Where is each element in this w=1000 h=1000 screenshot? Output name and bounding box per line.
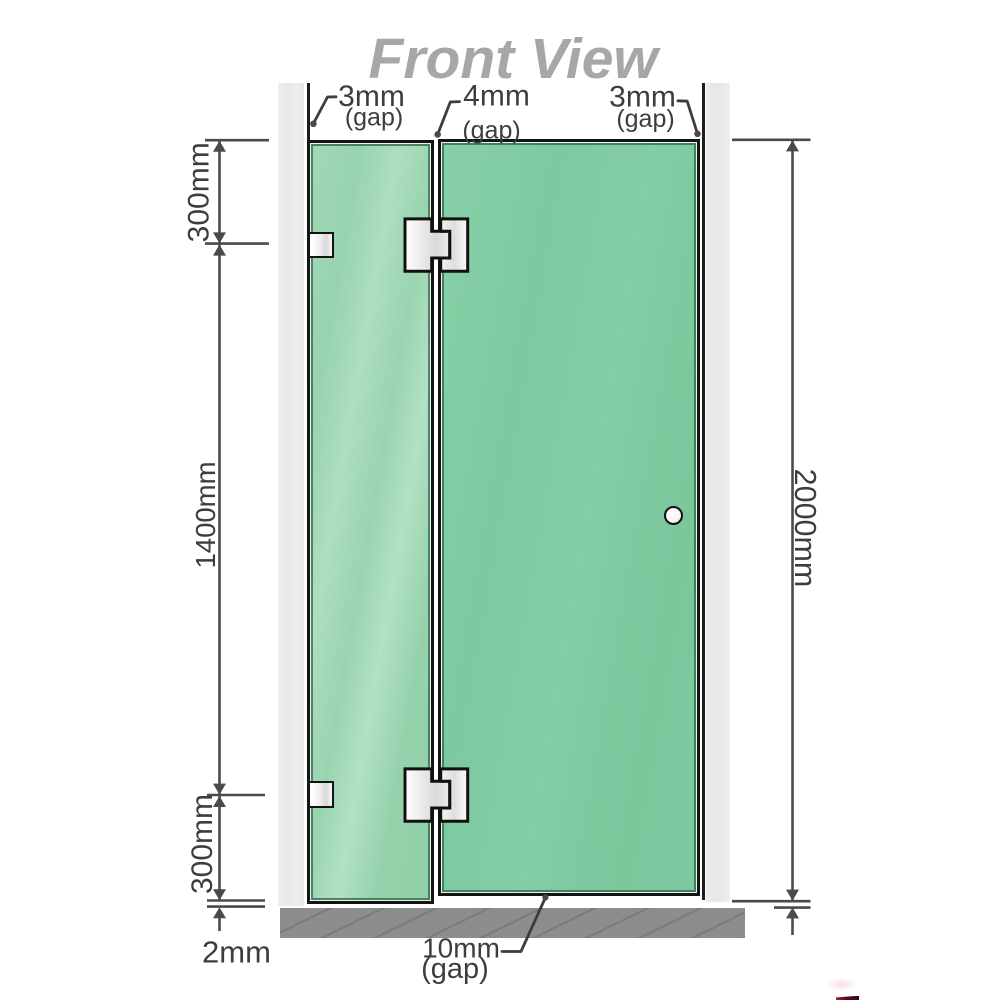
svg-text:(gap): (gap) [616,105,674,133]
svg-text:4mm: 4mm [463,79,530,112]
svg-text:2mm: 2mm [202,935,271,970]
svg-text:300mm: 300mm [186,794,219,894]
svg-text:1400mm: 1400mm [190,462,221,569]
svg-text:(gap): (gap) [421,953,489,985]
svg-text:300mm: 300mm [183,142,216,242]
svg-text:(gap): (gap) [462,117,520,145]
svg-text:(gap): (gap) [345,104,403,132]
svg-text:2000mm: 2000mm [788,469,822,588]
